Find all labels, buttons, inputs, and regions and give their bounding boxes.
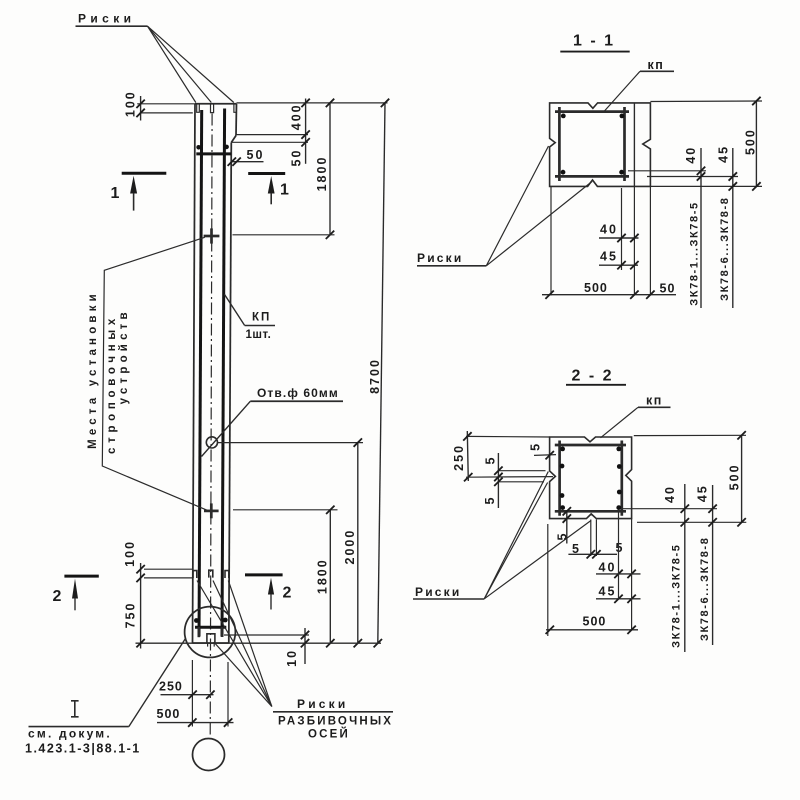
svg-text:5: 5 bbox=[555, 532, 569, 541]
svg-text:Риски: Риски bbox=[417, 251, 463, 265]
svg-text:45: 45 bbox=[696, 484, 710, 502]
svg-text:Отв.ф 60мм: Отв.ф 60мм bbox=[257, 386, 339, 400]
svg-text:40: 40 bbox=[684, 146, 698, 164]
svg-text:2: 2 bbox=[283, 585, 294, 602]
svg-text:250: 250 bbox=[159, 680, 183, 694]
svg-text:Риски: Риски bbox=[297, 697, 348, 711]
svg-text:5: 5 bbox=[484, 456, 498, 465]
svg-text:250: 250 bbox=[452, 444, 466, 471]
svg-text:500: 500 bbox=[157, 707, 181, 721]
svg-text:500: 500 bbox=[583, 615, 607, 629]
svg-text:1 - 1: 1 - 1 bbox=[573, 33, 615, 50]
svg-text:ЗК78-6...ЗК78-8: ЗК78-6...ЗК78-8 bbox=[719, 196, 731, 300]
svg-text:500: 500 bbox=[744, 128, 758, 155]
svg-text:50: 50 bbox=[290, 149, 304, 167]
svg-text:50: 50 bbox=[660, 282, 676, 296]
svg-text:40: 40 bbox=[663, 485, 677, 503]
svg-text:Места установки: Места установки bbox=[87, 290, 99, 449]
svg-text:1800: 1800 bbox=[315, 558, 329, 594]
svg-text:Риски: Риски bbox=[415, 585, 461, 599]
svg-text:5: 5 bbox=[529, 442, 543, 451]
svg-text:40: 40 bbox=[600, 223, 618, 237]
svg-text:РАЗБИВОЧНЫХ: РАЗБИВОЧНЫХ bbox=[278, 716, 393, 728]
svg-text:500: 500 bbox=[584, 281, 608, 295]
svg-text:кп: кп bbox=[648, 58, 665, 72]
svg-text:45: 45 bbox=[600, 250, 618, 264]
svg-text:ЗК78-1...ЗК78-5: ЗК78-1...ЗК78-5 bbox=[689, 201, 701, 305]
svg-text:8700: 8700 bbox=[368, 358, 382, 394]
svg-text:750: 750 bbox=[124, 602, 138, 629]
svg-text:500: 500 bbox=[728, 463, 742, 490]
svg-text:см. докум.: см. докум. bbox=[28, 727, 112, 741]
svg-text:40: 40 bbox=[599, 561, 617, 575]
svg-text:1.423.1-3|88.1-1: 1.423.1-3|88.1-1 bbox=[25, 742, 141, 756]
svg-text:50: 50 bbox=[247, 148, 265, 162]
svg-text:5: 5 bbox=[616, 541, 625, 555]
svg-text:45: 45 bbox=[599, 584, 617, 598]
svg-text:1шт.: 1шт. bbox=[246, 329, 272, 341]
svg-text:100: 100 bbox=[124, 90, 138, 117]
svg-text:1: 1 bbox=[111, 185, 122, 202]
svg-text:45: 45 bbox=[717, 145, 731, 163]
svg-text:2000: 2000 bbox=[343, 529, 357, 565]
svg-text:2 - 2: 2 - 2 bbox=[572, 368, 614, 385]
svg-text:ЗК78-1...ЗК78-5: ЗК78-1...ЗК78-5 bbox=[671, 543, 683, 647]
svg-text:2: 2 bbox=[53, 588, 64, 605]
svg-text:5: 5 bbox=[572, 542, 581, 556]
svg-text:ЗК78-6...ЗК78-8: ЗК78-6...ЗК78-8 bbox=[699, 537, 711, 641]
svg-text:400: 400 bbox=[290, 103, 304, 130]
svg-text:100: 100 bbox=[123, 540, 137, 567]
svg-text:1: 1 bbox=[280, 182, 291, 199]
svg-text:ОСЕЙ: ОСЕЙ bbox=[308, 728, 350, 741]
svg-text:10: 10 bbox=[285, 649, 299, 667]
svg-text:КП: КП bbox=[252, 312, 271, 324]
svg-text:5: 5 bbox=[483, 496, 497, 505]
svg-text:устройств: устройств bbox=[118, 308, 130, 404]
svg-text:строповочных: строповочных bbox=[106, 314, 118, 454]
svg-text:кп: кп bbox=[646, 394, 663, 408]
svg-text:1800: 1800 bbox=[315, 156, 329, 192]
svg-text:Риски: Риски bbox=[78, 12, 135, 26]
